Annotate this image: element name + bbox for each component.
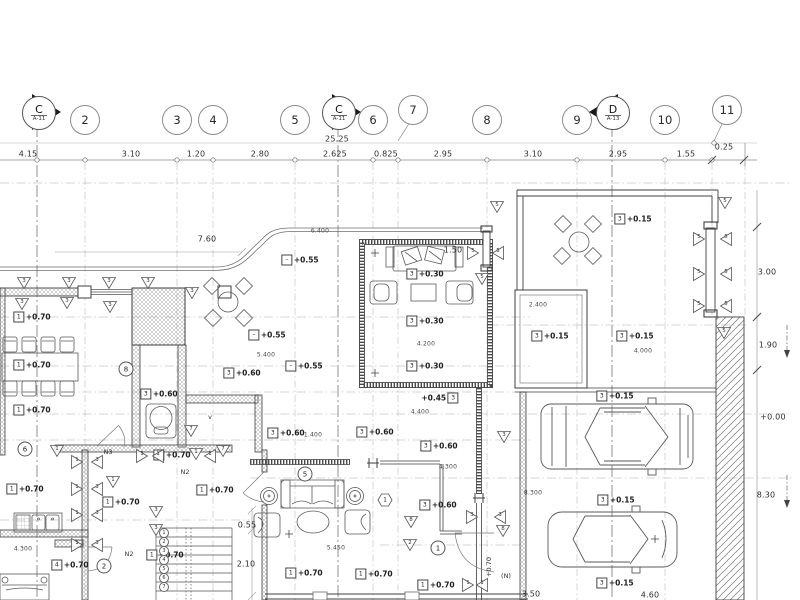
level-box: – bbox=[285, 361, 296, 372]
dim-small-4.400: 4.400 bbox=[411, 409, 429, 416]
dim-interior-7.60: 7.60 bbox=[198, 235, 217, 244]
level-value: +0.55 bbox=[261, 331, 286, 340]
level-value: +0.70 bbox=[298, 569, 323, 578]
tri-marker-3-0: 3 bbox=[16, 276, 32, 290]
level-box: 1 bbox=[13, 312, 24, 323]
level-box: 3 bbox=[420, 441, 431, 452]
level-label-15: 3+0.60 bbox=[356, 427, 393, 438]
level-value: +0.30 bbox=[419, 317, 444, 326]
triangle-tag-number: 3 bbox=[470, 512, 474, 518]
level-box: 1 bbox=[417, 580, 428, 591]
level-label-2: 1+0.70 bbox=[13, 405, 50, 416]
triangle-tag-number: 1 bbox=[75, 540, 79, 546]
triangle-tag-number: 7 bbox=[189, 426, 193, 432]
level-label-12: 3+0.60 bbox=[223, 368, 260, 379]
dim-small-5.450: 5.450 bbox=[327, 545, 345, 552]
level-value: +0.70 bbox=[209, 486, 234, 495]
tri-marker-8-38: 8 bbox=[403, 515, 419, 529]
grid-bubble-5: 5 bbox=[280, 105, 310, 135]
tri-marker-3-5: 3 bbox=[14, 297, 30, 311]
stair-number-7: 7 bbox=[159, 582, 169, 592]
triangle-tag-number: 1 bbox=[140, 451, 144, 457]
section-bubble: CA-11 bbox=[22, 96, 56, 130]
dim-top-4.15: 4.15 bbox=[19, 150, 38, 159]
triangle-tag-number: 1 bbox=[75, 510, 79, 516]
level-box: – bbox=[281, 255, 292, 266]
hex-marker-1-0: 1 bbox=[378, 493, 393, 507]
triangle-tag-number: 3 bbox=[498, 512, 502, 518]
level-label-19: –+0.55 bbox=[248, 330, 285, 341]
tri-marker-2-39: 2 bbox=[402, 538, 418, 552]
triangle-tag-number: 3 bbox=[65, 298, 69, 304]
level-box: 3 bbox=[356, 427, 367, 438]
tri-marker-1-21: 1 bbox=[134, 449, 150, 463]
level-value: +0.60 bbox=[433, 442, 458, 451]
triangle-tag-number: 5 bbox=[496, 248, 500, 254]
dim-small-4.300: 4.300 bbox=[439, 464, 457, 471]
level-label-13: 3+0.60 bbox=[140, 389, 177, 400]
triangle-tag-number: 3 bbox=[502, 432, 506, 438]
circle-marker-8-0: 8 bbox=[119, 362, 134, 377]
level-box: 3 bbox=[267, 428, 278, 439]
dim-top-2.625: 2.625 bbox=[323, 150, 347, 159]
grid-bubble-7: 7 bbox=[398, 95, 428, 125]
dim-top-2.80: 2.80 bbox=[251, 150, 270, 159]
level-box: 3 bbox=[616, 331, 627, 342]
triangle-tag-number: 5 bbox=[495, 202, 499, 208]
level-value: +0.55 bbox=[294, 256, 319, 265]
level-box: 1 bbox=[6, 484, 17, 495]
dim-small-6.400: 6.400 bbox=[311, 228, 329, 235]
level-value: +0.70 bbox=[26, 406, 51, 415]
triangle-tag-number: 3 bbox=[95, 540, 99, 546]
triangle-tag-number: 1 bbox=[194, 449, 198, 455]
dim-top-3.10: 3.10 bbox=[524, 150, 543, 159]
level-box: 3 bbox=[614, 214, 625, 225]
tri-marker-1-17: 1 bbox=[105, 475, 121, 489]
dim-top-25.25: 25.25 bbox=[325, 135, 349, 144]
triangle-tag-number: 3 bbox=[20, 299, 24, 305]
triangle-tag-number: 5 bbox=[722, 328, 726, 334]
section-bubble: CA-11 bbox=[322, 96, 356, 130]
level-label-1: 1+0.70 bbox=[13, 360, 50, 371]
triangle-tag-number: 5 bbox=[724, 301, 728, 307]
triangle-tag-number: 3 bbox=[154, 507, 158, 513]
dim-right-3.00: 3.00 bbox=[758, 268, 777, 277]
circle-marker-5-2: 5 bbox=[298, 467, 313, 482]
triangle-tag-number: 3 bbox=[146, 278, 150, 284]
level-box: 3 bbox=[419, 500, 430, 511]
triangle-tag-number: 1 bbox=[75, 484, 79, 490]
tri-marker-3-6: 3 bbox=[59, 296, 75, 310]
dim-interior-1.50: 1.50 bbox=[444, 246, 463, 255]
tri-marker-1-22: 1 bbox=[150, 449, 166, 463]
level-value: +0.60 bbox=[369, 428, 394, 437]
tri-marker-3-10: 3 bbox=[89, 455, 105, 469]
level-box: 1 bbox=[13, 405, 24, 416]
tri-marker-3-12: 3 bbox=[89, 482, 105, 496]
dim-small-1.400: 1.400 bbox=[304, 432, 322, 439]
level-box: 3 bbox=[448, 393, 459, 404]
triangle-tag-number: 3 bbox=[95, 510, 99, 516]
level-label-9: 1+0.70 bbox=[285, 568, 322, 579]
dim-small-4.200: 4.200 bbox=[417, 341, 435, 348]
tri-marker-3-3: 3 bbox=[140, 276, 156, 290]
circle-marker-2-4: 2 bbox=[97, 559, 112, 574]
tri-marker-3-40: 3 bbox=[464, 510, 480, 524]
level-box: 3 bbox=[406, 316, 417, 327]
level-label-11: 1+0.70 bbox=[417, 580, 454, 591]
tri-marker-1-15: 1 bbox=[69, 538, 85, 552]
level-value: +0.70 bbox=[19, 485, 44, 494]
floor-plan-canvas: 234567891011CA-11CA-11DA-134.153.101.202… bbox=[0, 0, 800, 600]
level-box: 3 bbox=[531, 331, 542, 342]
tri-marker-5-30: 5 bbox=[717, 196, 733, 210]
level-label-28: 3+0.15 bbox=[596, 391, 633, 402]
section-bubble: DA-13 bbox=[596, 96, 630, 130]
triangle-tag-number: 5 bbox=[697, 234, 701, 240]
level-label-14: 3+0.60 bbox=[267, 428, 304, 439]
grid-bubble-4: 4 bbox=[198, 105, 228, 135]
level-label-16: 3+0.60 bbox=[420, 441, 457, 452]
triangle-tag-number: 3 bbox=[95, 484, 99, 490]
triangle-tag-number: 5 bbox=[697, 269, 701, 275]
level-value: +0.15 bbox=[627, 215, 652, 224]
level-box: 1 bbox=[102, 497, 113, 508]
level-label-17: 3+0.60 bbox=[419, 500, 456, 511]
triangle-tag-number: 8 bbox=[409, 517, 413, 523]
dim-right-1.90: 1.90 bbox=[759, 341, 778, 350]
triangle-tag-number: 1 bbox=[208, 451, 212, 457]
level-box: – bbox=[248, 330, 259, 341]
tri-marker-1-13: 1 bbox=[69, 508, 85, 522]
level-label-0: 1+0.70 bbox=[13, 312, 50, 323]
tri-marker-5-29: 5 bbox=[489, 200, 505, 214]
level-value: +0.60 bbox=[432, 501, 457, 510]
level-value: +0.30 bbox=[419, 270, 444, 279]
tri-marker-1-11: 1 bbox=[69, 482, 85, 496]
triangle-tag-number: 8 bbox=[501, 526, 505, 532]
dim-top-0.825: 0.825 bbox=[374, 150, 398, 159]
dim-small-5.400: 5.400 bbox=[257, 352, 275, 359]
level-value: +0.70 bbox=[430, 581, 455, 590]
circle-marker-1-3: 1 bbox=[431, 541, 446, 556]
level-value: +0.15 bbox=[629, 332, 654, 341]
level-label-24: +0.453 bbox=[421, 393, 458, 404]
level-label-26: 3+0.15 bbox=[531, 331, 568, 342]
grid-bubble-11: 11 bbox=[712, 95, 742, 125]
triangle-tag-number: 5 bbox=[471, 248, 475, 254]
level-value: +0.15 bbox=[610, 496, 635, 505]
dim-top-3.10: 3.10 bbox=[122, 150, 141, 159]
tri-marker-3-7: 3 bbox=[102, 300, 118, 314]
level-label-6: 1+0.70 bbox=[102, 497, 139, 508]
triangle-tag-number: 3 bbox=[108, 302, 112, 308]
grid-bubble-10: 10 bbox=[650, 105, 680, 135]
level-box: 1 bbox=[146, 550, 157, 561]
triangle-tag-number: 5 bbox=[723, 198, 727, 204]
level-label-5: 1+0.70 bbox=[196, 485, 233, 496]
level-value: +0.70 bbox=[166, 451, 191, 460]
level-value: +0.70 bbox=[64, 561, 89, 570]
tri-marker-3-2: 3 bbox=[101, 276, 117, 290]
level-box: 3 bbox=[223, 368, 234, 379]
circle-marker-6-1: 6 bbox=[18, 442, 33, 457]
grid-bubble-3: 3 bbox=[162, 105, 192, 135]
tri-marker-5-37: 5 bbox=[716, 326, 732, 340]
tri-marker-3-1: 3 bbox=[61, 276, 77, 290]
level-value: +0.15 bbox=[609, 392, 634, 401]
level-box: 4 bbox=[51, 560, 62, 571]
hexagon-tag-number: 1 bbox=[383, 497, 387, 504]
dim-right-+0.00: +0.00 bbox=[760, 413, 786, 422]
level-label-8: 4+0.70 bbox=[51, 560, 88, 571]
level-value: +0.45 bbox=[421, 394, 446, 403]
level-value: +0.15 bbox=[544, 332, 569, 341]
tri-marker-3-41: 3 bbox=[492, 510, 508, 524]
tri-marker-5-31: 5 bbox=[691, 232, 707, 246]
tri-marker-5-36: 5 bbox=[718, 299, 734, 313]
level-value: +0.55 bbox=[298, 362, 323, 371]
dim-small-8.300: 8.300 bbox=[524, 490, 542, 497]
level-box: 3 bbox=[406, 361, 417, 372]
tri-marker-1-9: 1 bbox=[69, 455, 85, 469]
triangle-tag-number: 3 bbox=[22, 278, 26, 284]
tri-marker-3-16: 3 bbox=[89, 538, 105, 552]
tri-marker-5-32: 5 bbox=[718, 232, 734, 246]
dim-top-2.95: 2.95 bbox=[609, 150, 628, 159]
triangle-tag-number: 3 bbox=[95, 457, 99, 463]
level-box: 1 bbox=[196, 485, 207, 496]
tri-marker-3-4: 3 bbox=[184, 286, 200, 300]
triangle-tag-number: 5 bbox=[697, 301, 701, 307]
triangle-tag-number: 5 bbox=[724, 234, 728, 240]
level-value: +0.70 bbox=[368, 570, 393, 579]
tri-marker-8-42: 8 bbox=[495, 524, 511, 538]
triangle-tag-number: 3 bbox=[67, 278, 71, 284]
triangle-tag-number: 1 bbox=[480, 580, 484, 586]
tri-marker-5-27: 5 bbox=[490, 246, 506, 260]
triangle-tag-number: 3 bbox=[107, 278, 111, 284]
dim-interior-3.50: 3.50 bbox=[522, 590, 541, 599]
note-text-5: v bbox=[208, 413, 212, 421]
triangle-tag-number: 7 bbox=[221, 446, 225, 452]
triangle-tag-number: 1 bbox=[156, 451, 160, 457]
note-text-2: N2 bbox=[125, 550, 134, 558]
level-box: 1 bbox=[355, 569, 366, 580]
tri-marker-3-43: 3 bbox=[496, 430, 512, 444]
level-label-21: 3+0.30 bbox=[406, 269, 443, 280]
level-label-22: 3+0.30 bbox=[406, 316, 443, 327]
tri-marker-5-35: 5 bbox=[691, 299, 707, 313]
dim-top-0.25: 0.25 bbox=[715, 143, 734, 152]
tri-marker-5-26: 5 bbox=[465, 246, 481, 260]
triangle-tag-number: 1 bbox=[111, 477, 115, 483]
level-box: 3 bbox=[597, 495, 608, 506]
note-text-3: (N) bbox=[501, 572, 511, 580]
tri-marker-1-45: 1 bbox=[474, 578, 490, 592]
dim-small-4.000: 4.000 bbox=[634, 348, 652, 355]
level-label-29: 3+0.15 bbox=[597, 495, 634, 506]
triangle-tag-number: 1 bbox=[75, 457, 79, 463]
dim-interior-2.10: 2.10 bbox=[237, 560, 256, 569]
triangle-tag-number: 3 bbox=[190, 288, 194, 294]
level-box: 3 bbox=[140, 389, 151, 400]
level-box: 3 bbox=[596, 391, 607, 402]
triangle-tag-number: 3 bbox=[154, 525, 158, 531]
dim-small-2.400: 2.400 bbox=[529, 302, 547, 309]
level-label-27: 3+0.15 bbox=[616, 331, 653, 342]
level-label-23: 3+0.30 bbox=[406, 361, 443, 372]
level-value: +0.15 bbox=[609, 579, 634, 588]
dim-top-1.20: 1.20 bbox=[187, 150, 206, 159]
level-value: +0.60 bbox=[153, 390, 178, 399]
tri-marker-3-14: 3 bbox=[89, 508, 105, 522]
dim-interior-0.55: 0.55 bbox=[238, 521, 257, 530]
dim-small-4.300: 4.300 bbox=[14, 546, 32, 553]
annotation-layer: 234567891011CA-11CA-11DA-134.153.101.202… bbox=[0, 0, 800, 600]
level-label-20: –+0.55 bbox=[285, 361, 322, 372]
level-value: +0.60 bbox=[236, 369, 261, 378]
level-label-3: 1+0.70 bbox=[6, 484, 43, 495]
triangle-tag-number: 1 bbox=[466, 580, 470, 586]
level-label-10: 1+0.70 bbox=[355, 569, 392, 580]
triangle-tag-number: 5 bbox=[724, 269, 728, 275]
tri-marker-5-28: 5 bbox=[474, 272, 490, 286]
level-value: +0.70 bbox=[115, 498, 140, 507]
tri-marker-7-20: 7 bbox=[183, 424, 199, 438]
tri-marker-5-33: 5 bbox=[691, 267, 707, 281]
tri-marker-5-34: 5 bbox=[718, 267, 734, 281]
note-text-0: N3 bbox=[104, 448, 113, 456]
level-box: 1 bbox=[285, 568, 296, 579]
dim-interior-4.60: 4.60 bbox=[641, 591, 660, 600]
level-box: 1 bbox=[13, 360, 24, 371]
triangle-tag-number: 5 bbox=[480, 274, 484, 280]
grid-bubble-8: 8 bbox=[472, 105, 502, 135]
level-label-30: 3+0.15 bbox=[596, 578, 633, 589]
dim-top-2.95: 2.95 bbox=[434, 150, 453, 159]
triangle-tag-number: 1 bbox=[55, 446, 59, 452]
note-text-1: N2 bbox=[181, 468, 190, 476]
level-label-18: –+0.55 bbox=[281, 255, 318, 266]
tri-marker-1-8: 1 bbox=[49, 444, 65, 458]
note-text-4: +0.70 bbox=[485, 557, 493, 577]
level-label-25: 3+0.15 bbox=[614, 214, 651, 225]
level-value: +0.60 bbox=[280, 429, 305, 438]
level-box: 3 bbox=[596, 578, 607, 589]
level-value: +0.70 bbox=[26, 313, 51, 322]
dim-right-8.30: 8.30 bbox=[757, 491, 776, 500]
triangle-tag-number: 2 bbox=[408, 540, 412, 546]
tri-marker-3-18: 3 bbox=[148, 505, 164, 519]
level-value: +0.70 bbox=[26, 361, 51, 370]
level-value: +0.30 bbox=[419, 362, 444, 371]
level-box: 3 bbox=[406, 269, 417, 280]
grid-bubble-2: 2 bbox=[70, 105, 100, 135]
dim-top-1.55: 1.55 bbox=[677, 150, 696, 159]
tri-marker-7-25: 7 bbox=[215, 444, 231, 458]
